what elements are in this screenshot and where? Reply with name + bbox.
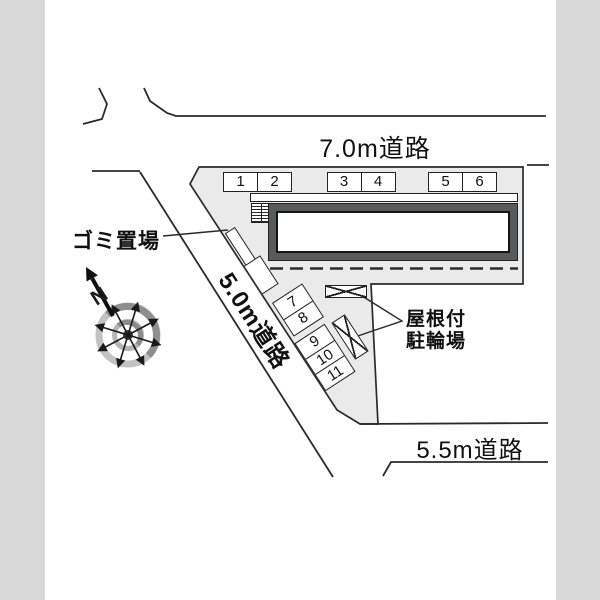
building-interior [276, 211, 510, 253]
building-footprint [268, 203, 518, 261]
compass-icon [80, 267, 160, 367]
parking-space-4: 4 [361, 173, 395, 191]
road-label-5-5m: 5.5m道路 [380, 430, 560, 465]
parking-group-3-4: 3 4 [327, 172, 396, 192]
parking-space-5: 5 [429, 173, 462, 191]
road-bottom-north-edge [360, 423, 548, 424]
parking-space-3: 3 [328, 173, 361, 191]
bike-parking-label-line2: 駐輪場 [406, 331, 466, 353]
parking-group-5-6: 5 6 [428, 172, 497, 192]
garbage-leader-line [163, 230, 228, 236]
building-corridor [250, 193, 518, 202]
bike-parking-box-1 [325, 285, 367, 298]
garbage-area-label: ゴミ置場 [58, 225, 160, 255]
road-top-side-street [83, 88, 107, 124]
parking-space-2: 2 [257, 173, 291, 191]
bike-parking-label: 屋根付 駐輪場 [406, 309, 466, 352]
parking-space-1: 1 [224, 173, 257, 191]
parking-group-1-2: 1 2 [223, 172, 292, 192]
bike-parking-label-line1: 屋根付 [406, 309, 466, 331]
parking-space-6: 6 [462, 173, 496, 191]
road-label-7m: 7.0m道路 [285, 129, 465, 165]
stairs-hatch-left [252, 204, 261, 222]
road-top-north-edge [144, 88, 546, 116]
site-plan: 1 2 3 4 5 6 7 8 9 10 11 7.0m道路 5.5m道路 5.… [0, 0, 600, 600]
